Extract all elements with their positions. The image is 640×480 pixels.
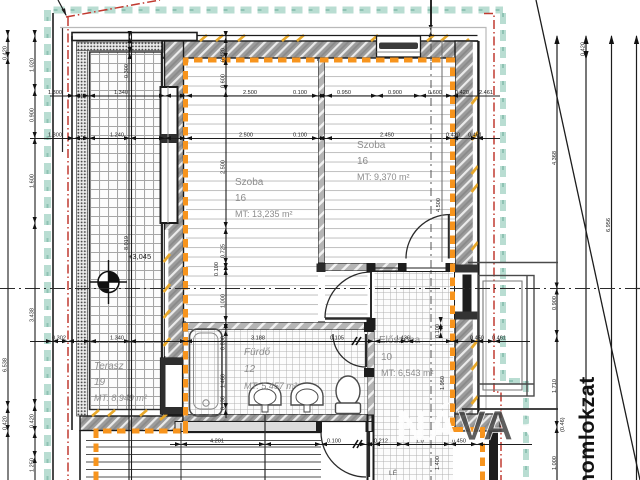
svg-text:1.020: 1.020 (30, 58, 36, 72)
svg-text:0.450: 0.450 (470, 336, 484, 342)
svg-text:0.100: 0.100 (435, 324, 441, 338)
svg-text:4.500: 4.500 (436, 198, 442, 212)
svg-text:Szoba: Szoba (235, 177, 264, 188)
svg-text:12: 12 (244, 364, 256, 375)
svg-text:MT: 5,457 m²: MT: 5,457 m² (244, 381, 298, 391)
svg-text:0.100: 0.100 (327, 439, 341, 445)
svg-text:2.500: 2.500 (239, 133, 253, 139)
svg-text:1.300: 1.300 (48, 133, 62, 139)
svg-text:1.300: 1.300 (48, 90, 62, 96)
svg-text:1.000: 1.000 (221, 294, 227, 308)
svg-text:homlokzat: homlokzat (575, 376, 599, 480)
svg-text:0.105: 0.105 (330, 336, 344, 342)
svg-text:0.420: 0.420 (3, 46, 9, 60)
svg-text:0.461: 0.461 (492, 336, 506, 342)
svg-text:2.500: 2.500 (221, 160, 227, 174)
svg-text:1.340: 1.340 (114, 90, 128, 96)
svg-text:(0.46): (0.46) (560, 417, 566, 432)
svg-text:0.725: 0.725 (221, 244, 227, 258)
svg-text:MT: 9,370 m²: MT: 9,370 m² (357, 172, 410, 182)
svg-text:3.188: 3.188 (251, 336, 265, 342)
svg-text:2.500: 2.500 (243, 90, 257, 96)
svg-text:0.100: 0.100 (214, 262, 220, 276)
svg-text:1.340: 1.340 (110, 336, 124, 342)
svg-text:1.460: 1.460 (221, 374, 227, 388)
svg-text:0.420: 0.420 (455, 90, 469, 96)
svg-text:0.130: 0.130 (221, 396, 227, 410)
svg-text:16: 16 (357, 156, 369, 167)
svg-text:0.420: 0.420 (30, 414, 36, 428)
svg-text:Fürdő: Fürdő (244, 347, 271, 358)
svg-text:0.900: 0.900 (30, 108, 36, 122)
svg-text:0.600: 0.600 (221, 74, 227, 88)
svg-text:0.420: 0.420 (221, 48, 227, 62)
svg-text:10: 10 (381, 352, 393, 363)
svg-text:1.250: 1.250 (30, 458, 36, 472)
svg-text:0.100: 0.100 (293, 133, 307, 139)
svg-text:0.600: 0.600 (221, 336, 227, 350)
svg-text:0.900: 0.900 (388, 90, 402, 96)
svg-text:1.600: 1.600 (30, 174, 36, 188)
svg-text:0.420: 0.420 (446, 133, 460, 139)
svg-text:19: 19 (94, 377, 106, 388)
svg-text:Szoba: Szoba (357, 140, 386, 151)
svg-text:1.436: 1.436 (396, 336, 410, 342)
svg-text:1.400: 1.400 (435, 456, 441, 470)
svg-text:2.461: 2.461 (479, 90, 493, 96)
svg-text:0.212: 0.212 (374, 439, 388, 445)
svg-text:0.950: 0.950 (337, 90, 351, 96)
svg-text:VA: VA (458, 402, 513, 449)
svg-text:4.201: 4.201 (210, 439, 224, 445)
svg-text:1.240: 1.240 (110, 133, 124, 139)
svg-text:0.600: 0.600 (428, 90, 442, 96)
svg-text:0.100: 0.100 (293, 90, 307, 96)
svg-text:2.450: 2.450 (380, 133, 394, 139)
svg-text:1.000: 1.000 (552, 456, 558, 470)
svg-text:MT: 6,543 m²: MT: 6,543 m² (381, 368, 434, 378)
svg-text:MT: 8,949 m²: MT: 8,949 m² (94, 393, 148, 403)
svg-text:0.420: 0.420 (3, 416, 9, 430)
svg-text:3.438: 3.438 (30, 308, 36, 322)
svg-text:0.420: 0.420 (581, 42, 587, 56)
svg-text:0.302: 0.302 (52, 336, 66, 342)
svg-text:4.368: 4.368 (552, 151, 558, 165)
svg-text:1.710: 1.710 (552, 379, 558, 393)
svg-text:MT: 13,235 m²: MT: 13,235 m² (235, 209, 293, 219)
svg-text:0.900: 0.900 (552, 296, 558, 310)
svg-text:LÉ: LÉ (389, 468, 398, 477)
svg-text:Terasz: Terasz (94, 361, 124, 372)
svg-text:1.950: 1.950 (440, 376, 446, 390)
svg-text:NÁ: NÁ (396, 402, 459, 449)
svg-text:R: R (509, 402, 539, 449)
svg-text:6.538: 6.538 (3, 358, 9, 372)
svg-text:6.956: 6.956 (606, 218, 612, 232)
svg-text:0.461: 0.461 (468, 133, 482, 139)
svg-text:0.300: 0.300 (124, 64, 130, 78)
svg-text:16: 16 (235, 193, 247, 204)
svg-text:8.919: 8.919 (124, 236, 130, 250)
